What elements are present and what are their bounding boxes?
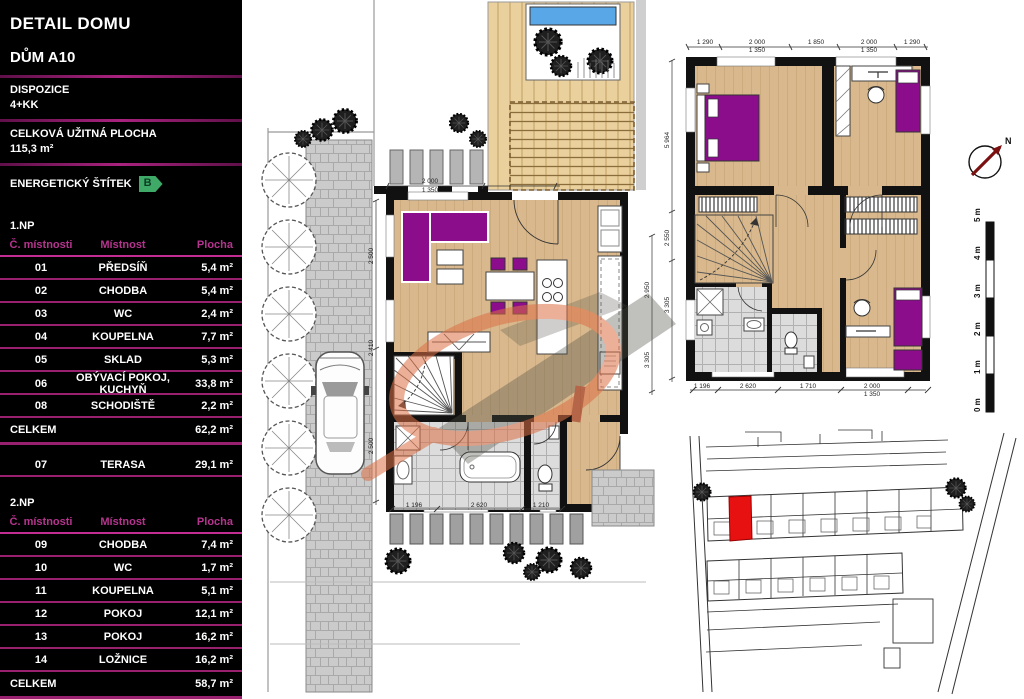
room-number: 05: [7, 354, 75, 366]
car: [311, 352, 369, 474]
nightstand: [697, 163, 709, 172]
energy-badge: B: [139, 176, 163, 192]
front-door-opening: [620, 434, 628, 470]
wc-room: [531, 422, 560, 510]
bush-icon: [312, 120, 333, 141]
bush-icon: [450, 114, 468, 132]
energy-label: ENERGETICKÝ ŠTÍTEK: [10, 178, 132, 190]
floor2-table-header: Č. místnosti Místnost Plocha: [0, 512, 242, 534]
highlighted-unit: [729, 496, 752, 541]
room-area: 16,2 m²: [171, 631, 233, 643]
table-row: 02 CHODBA 5,4 m²: [0, 280, 242, 303]
scale-bar: 0 m 1 m 2 m 3 m 4 m 5 m: [973, 208, 994, 412]
table-row: 10 WC 1,7 m²: [0, 557, 242, 580]
window: [921, 86, 930, 134]
coffee-table: [437, 250, 463, 265]
dim-label: 2 000: [422, 178, 439, 185]
pillow: [708, 99, 718, 117]
window: [386, 300, 394, 342]
room-area: 16,2 m²: [171, 654, 233, 666]
table-row: 14 LOŽNICE 16,2 m²: [0, 649, 242, 672]
room-name: WC: [75, 308, 171, 320]
total-label: CELKEM: [10, 424, 171, 436]
table-row: 05 SKLAD 5,3 m²: [0, 349, 242, 372]
room-number: 10: [7, 562, 75, 574]
room-area: 5,4 m²: [171, 262, 233, 274]
bush-icon: [694, 484, 711, 501]
col-room-number: Č. místnosti: [7, 239, 75, 251]
wc-upper: [772, 314, 817, 372]
dispozice-value: 4+KK: [10, 99, 232, 111]
total-area-value: 115,3 m²: [10, 143, 232, 155]
door-opening: [512, 192, 558, 200]
room-area: 5,3 m²: [171, 354, 233, 366]
col-area: Plocha: [171, 239, 233, 251]
room-number: 12: [7, 608, 75, 620]
coffee-table: [437, 269, 463, 284]
dim-label: 1 290: [904, 39, 921, 46]
room-name: KOUPELNA: [75, 331, 171, 343]
room-area: 29,1 m²: [171, 459, 233, 471]
table-row: 09 CHODBA 7,4 m²: [0, 534, 242, 557]
room-area: 2,2 m²: [171, 400, 233, 412]
window: [386, 215, 394, 257]
house-name: DŮM A10: [10, 49, 232, 66]
tree-icon: [262, 421, 316, 475]
pillow: [898, 72, 918, 83]
chair: [513, 258, 527, 270]
bush-icon: [386, 549, 410, 573]
room-area: 2,4 m²: [171, 308, 233, 320]
room-number: 02: [7, 285, 75, 297]
total-value: 62,2 m²: [171, 424, 233, 436]
room-name: PŘEDSÍŇ: [75, 262, 171, 274]
bathroom-upper: [695, 287, 767, 372]
desk-chair: [868, 87, 884, 103]
bedroom-left: [697, 84, 759, 172]
dim-label: 2 550: [664, 229, 671, 246]
room-area: 33,8 m²: [171, 378, 233, 390]
room-name: OBÝVACÍ POKOJ, KUCHYŇ: [75, 372, 171, 396]
bush-icon: [504, 543, 524, 563]
terrace-row: 07 TERASA 29,1 m²: [0, 454, 242, 477]
room-number: 13: [7, 631, 75, 643]
room-name: SKLAD: [75, 354, 171, 366]
room-number: 01: [7, 262, 75, 274]
total-value: 58,7 m²: [171, 678, 233, 690]
total-area-label: CELKOVÁ UŽITNÁ PLOCHA: [10, 128, 232, 140]
dim-label: 1 350: [864, 391, 881, 398]
room-name: WC: [75, 562, 171, 574]
tree-icon: [262, 220, 316, 274]
tree-icon: [262, 287, 316, 341]
dim-label: 2 620: [740, 383, 757, 390]
room-number: 06: [7, 378, 75, 390]
dim-label: 2 000: [861, 39, 878, 46]
bush-icon: [571, 558, 591, 578]
room-area: 5,1 m²: [171, 585, 233, 597]
neighbor-strip: [636, 0, 646, 190]
room-area: 7,4 m²: [171, 539, 233, 551]
room-name: LOŽNICE: [75, 654, 171, 666]
bush-icon: [537, 548, 561, 572]
toilet: [538, 465, 552, 483]
table-row: 12 POKOJ 12,1 m²: [0, 603, 242, 626]
floor1-label: 1.NP: [0, 220, 242, 232]
staircase-upper: [695, 215, 773, 283]
col-area: Plocha: [171, 516, 233, 528]
window: [717, 57, 775, 66]
dispozice-block: DISPOZICE 4+KK: [0, 78, 242, 119]
terrace: [374, 0, 646, 194]
pillow: [896, 290, 920, 300]
dim-label: 2 410: [368, 339, 375, 356]
col-room-name: Místnost: [75, 239, 171, 251]
pillow: [708, 139, 718, 157]
room-number: 03: [7, 308, 75, 320]
room-name: CHODBA: [75, 285, 171, 297]
nightstand: [697, 84, 709, 93]
floor2-total-row: CELKEM 58,7 m²: [0, 672, 242, 699]
room-number: 09: [7, 539, 75, 551]
headboard: [697, 95, 705, 161]
toilet: [785, 332, 797, 348]
dim-label: 2 500: [368, 247, 375, 264]
tree-icon: [262, 153, 316, 207]
room-number: 08: [7, 400, 75, 412]
bush-icon: [960, 497, 975, 512]
table-row: 04 KOUPELNA 7,7 m²: [0, 326, 242, 349]
dim-label: 1 196: [694, 383, 711, 390]
bush-icon: [334, 110, 357, 133]
scale-label: 5 m: [973, 208, 982, 222]
total-label: CELKEM: [10, 678, 171, 690]
dim-label: 5 964: [664, 131, 671, 148]
tree-icon: [262, 488, 316, 542]
bush-icon: [524, 564, 540, 580]
col-room-name: Místnost: [75, 516, 171, 528]
sink: [804, 356, 814, 368]
compass-north-label: N: [1005, 136, 1012, 146]
floor1-total-row: CELKEM 62,2 m²: [0, 418, 242, 445]
dim-label: 3 305: [664, 296, 671, 313]
bush-icon: [947, 479, 966, 498]
road-right: [938, 433, 1016, 694]
room-number: 07: [7, 459, 75, 471]
dim-label: 1 290: [697, 39, 714, 46]
room-name: KOUPELNA: [75, 585, 171, 597]
dim-label: 2 620: [471, 502, 488, 509]
window: [686, 88, 695, 132]
room-number: 14: [7, 654, 75, 666]
page-title: DETAIL DOMU: [10, 14, 232, 34]
tree-icon: [262, 354, 316, 408]
dim-label: 2 500: [368, 437, 375, 454]
dim-label: 1 350: [422, 187, 439, 194]
table-row: 08 SCHODIŠTĚ 2,2 m²: [0, 395, 242, 418]
bush-icon: [295, 131, 311, 147]
site-plan: [690, 430, 1016, 694]
room-number: 04: [7, 331, 75, 343]
table-row: 13 POKOJ 16,2 m²: [0, 626, 242, 649]
chair: [491, 258, 505, 270]
room-area: 5,4 m²: [171, 285, 233, 297]
dim-label: 1 710: [800, 383, 817, 390]
room-area: 1,7 m²: [171, 562, 233, 574]
water-feature: [530, 7, 616, 25]
washing-machine: [697, 320, 712, 335]
compass: N: [969, 136, 1012, 178]
dim-label: 1 850: [808, 39, 825, 46]
scale-label: 3 m: [973, 284, 982, 298]
dim-label: 1 210: [533, 502, 550, 509]
sidebar: DETAIL DOMU DŮM A10 DISPOZICE 4+KK CELKO…: [0, 0, 242, 697]
room-name: POKOJ: [75, 608, 171, 620]
dim-label: 3 305: [644, 351, 651, 368]
table-row: 03 WC 2,4 m²: [0, 303, 242, 326]
wardrobe-hatched: [699, 197, 757, 212]
room-name: CHODBA: [75, 539, 171, 551]
dining-table: [486, 272, 534, 300]
window: [686, 300, 695, 340]
floor2-label: 2.NP: [0, 497, 242, 509]
table-row: 11 KOUPELNA 5,1 m²: [0, 580, 242, 603]
dim-label: 2 000: [749, 39, 766, 46]
window: [836, 57, 896, 66]
dim-label: 1 350: [861, 47, 878, 54]
room-area: 7,7 m²: [171, 331, 233, 343]
dim-label: 1 196: [406, 502, 423, 509]
total-area-block: CELKOVÁ UŽITNÁ PLOCHA 115,3 m²: [0, 122, 242, 163]
wardrobe-hatched: [845, 197, 917, 212]
oven-column: [598, 206, 622, 252]
room-number: 11: [7, 585, 75, 597]
upper-floor-plan: 1 290 2 000 1 850 2 000 1 290 1 350 1 35…: [664, 39, 931, 398]
bush-icon: [535, 29, 561, 55]
room-area: 12,1 m²: [171, 608, 233, 620]
scale-label: 1 m: [973, 360, 982, 374]
fence-posts: [390, 514, 583, 544]
bush-icon: [470, 131, 486, 147]
floor1-table-header: Č. místnosti Místnost Plocha: [0, 235, 242, 257]
pergola: [510, 102, 634, 190]
wardrobe-hatched: [845, 219, 917, 234]
bed-bench: [894, 350, 922, 370]
table-row: 01 PŘEDSÍŇ 5,4 m²: [0, 257, 242, 280]
table-row: 06 OBÝVACÍ POKOJ, KUCHYŇ 33,8 m²: [0, 372, 242, 395]
dim-label: 2 000: [864, 383, 881, 390]
scale-label: 4 m: [973, 246, 982, 260]
col-room-number: Č. místnosti: [7, 516, 75, 528]
dim-label: 1 350: [749, 47, 766, 54]
scale-label: 0 m: [973, 398, 982, 412]
entry-paving: [592, 470, 654, 526]
room-name: SCHODIŠTĚ: [75, 400, 171, 412]
room-name: TERASA: [75, 459, 171, 471]
energy-row: ENERGETICKÝ ŠTÍTEK B: [0, 166, 242, 200]
sofa: [402, 212, 430, 282]
dispozice-label: DISPOZICE: [10, 84, 232, 96]
desk-chair: [854, 300, 870, 316]
room-name: POKOJ: [75, 631, 171, 643]
bush-icon: [551, 56, 571, 76]
scale-label: 2 m: [973, 322, 982, 336]
